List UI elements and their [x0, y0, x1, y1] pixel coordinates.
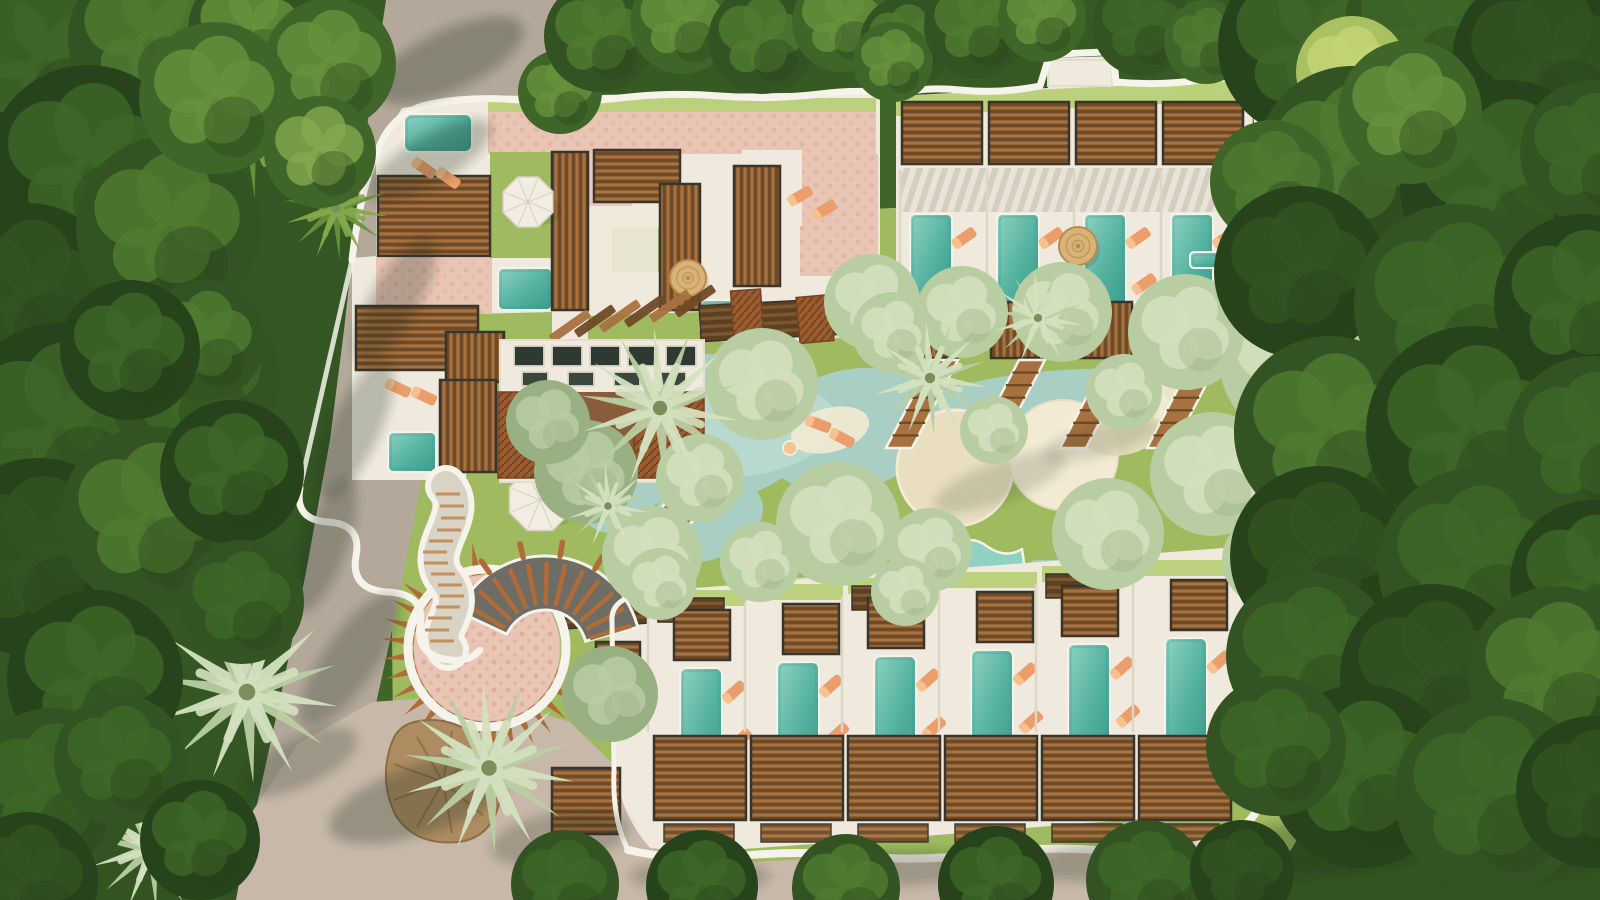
resort-aerial-render — [0, 0, 1600, 900]
tree-canopy — [1206, 676, 1346, 816]
circle-shape — [783, 441, 797, 455]
wood-pergola — [902, 102, 982, 164]
tree-canopy — [60, 280, 200, 420]
window — [568, 372, 594, 386]
tree-canopy — [853, 22, 933, 102]
tree-canopy — [140, 780, 260, 900]
scene-canvas — [0, 0, 1600, 900]
plunge-pool — [388, 432, 436, 472]
soft-tree-canopy — [1052, 478, 1164, 590]
window — [514, 346, 544, 366]
wood-pergola — [783, 604, 839, 654]
wood-pergola — [751, 736, 843, 820]
plunge-pool — [498, 268, 552, 310]
soft-tree-canopy — [656, 434, 744, 522]
tree-canopy — [160, 400, 304, 544]
soft-tree-canopy — [506, 380, 590, 464]
soft-tree-canopy — [624, 548, 696, 620]
wood-pergola — [446, 332, 504, 382]
wood-pergola — [654, 736, 746, 820]
wood-pergola — [977, 592, 1033, 642]
pergola-extension — [761, 824, 831, 842]
soft-tree-canopy — [720, 522, 800, 602]
window — [552, 346, 582, 366]
wood-pergola — [848, 736, 940, 820]
soft-tree-canopy — [1086, 354, 1162, 430]
wood-pergola — [674, 610, 730, 660]
wood-pergola — [440, 380, 496, 472]
wood-pergola — [1042, 736, 1134, 820]
tree-canopy — [180, 540, 304, 664]
wood-pergola — [1062, 586, 1118, 636]
wood-pergola — [945, 736, 1037, 820]
soft-tree-canopy — [871, 558, 939, 626]
wood-pergola — [989, 102, 1069, 164]
tree-canopy — [1338, 40, 1482, 184]
wood-pergola — [552, 152, 588, 310]
window — [590, 346, 620, 366]
surface — [588, 206, 658, 302]
wood-pergola — [1171, 580, 1227, 630]
wood-pergola — [734, 166, 780, 286]
surface — [731, 289, 764, 335]
wood-pergola — [1076, 102, 1156, 164]
tree-canopy — [264, 96, 376, 208]
soft-tree-canopy — [562, 646, 658, 742]
surface — [1048, 60, 1112, 86]
soft-tree-canopy — [706, 328, 818, 440]
